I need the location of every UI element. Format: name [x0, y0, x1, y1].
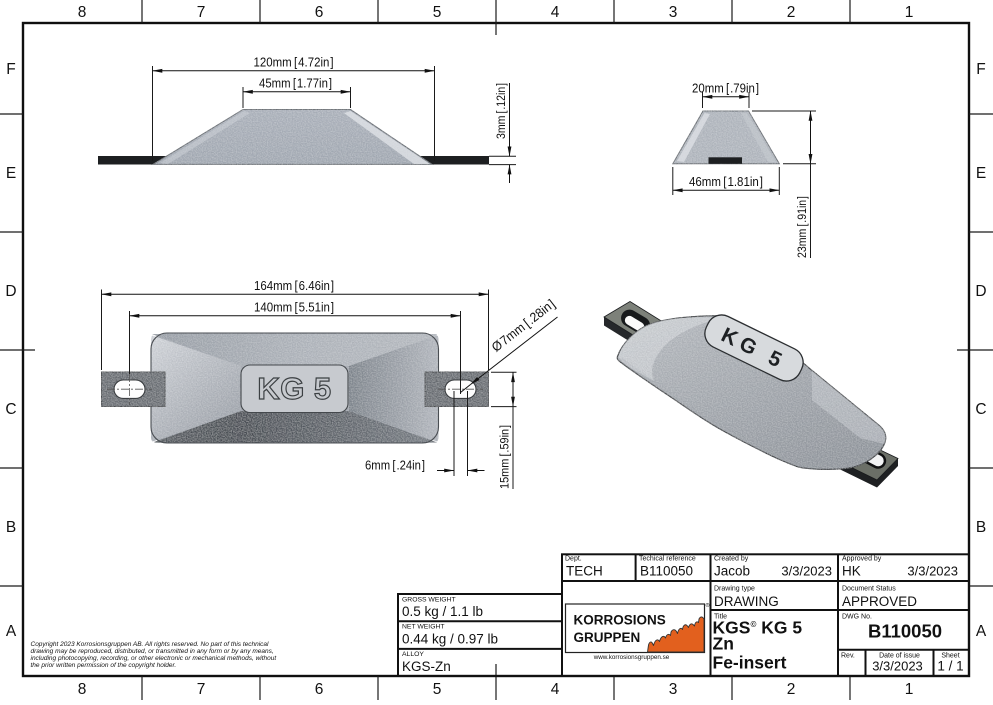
svg-text:46mm [ 1.81in ]: 46mm [ 1.81in ] — [689, 174, 763, 189]
svg-text:F: F — [976, 61, 985, 78]
svg-text:6: 6 — [315, 4, 324, 21]
svg-text:45mm [ 1.77in ]: 45mm [ 1.77in ] — [259, 76, 332, 91]
svg-text:®: ® — [706, 602, 710, 609]
svg-text:Document Status: Document Status — [842, 586, 896, 593]
svg-text:drawing may be reproduced, dis: drawing may be reproduced, distributed, … — [31, 648, 274, 655]
svg-text:ALLOY: ALLOY — [402, 651, 424, 658]
svg-text:Zn: Zn — [713, 634, 734, 654]
svg-text:164mm [ 6.46in ]: 164mm [ 6.46in ] — [254, 278, 334, 293]
svg-text:Created by: Created by — [714, 556, 749, 563]
svg-text:Dept.: Dept. — [565, 556, 582, 563]
svg-text:4: 4 — [551, 681, 560, 698]
svg-text:including photocopying, record: including photocopying, recording, or ot… — [31, 655, 278, 662]
svg-text:KGS-Zn: KGS-Zn — [402, 659, 451, 674]
svg-text:1: 1 — [905, 681, 914, 698]
svg-text:C: C — [5, 401, 16, 418]
svg-text:F: F — [6, 61, 15, 78]
svg-text:7: 7 — [197, 681, 206, 698]
svg-text:5: 5 — [433, 4, 442, 21]
svg-text:1 / 1: 1 / 1 — [937, 659, 963, 674]
svg-text:KORROSIONS: KORROSIONS — [574, 613, 666, 628]
svg-text:2: 2 — [787, 4, 796, 21]
svg-text:www.korrosionsgruppen.se: www.korrosionsgruppen.se — [593, 654, 670, 661]
svg-text:B: B — [6, 519, 16, 536]
svg-text:Drawing type: Drawing type — [714, 586, 755, 593]
svg-text:D: D — [5, 283, 16, 300]
svg-text:3/3/2023: 3/3/2023 — [872, 659, 923, 674]
svg-text:A: A — [976, 623, 987, 640]
svg-text:E: E — [6, 165, 16, 182]
svg-text:8: 8 — [78, 681, 87, 698]
svg-text:3/3/2023: 3/3/2023 — [781, 564, 832, 579]
svg-text:C: C — [975, 401, 986, 418]
svg-text:3mm [ .12in ]: 3mm [ .12in ] — [494, 83, 508, 139]
svg-text:DRAWING: DRAWING — [714, 594, 779, 609]
svg-text:4: 4 — [551, 4, 560, 21]
svg-text:GROSS WEIGHT: GROSS WEIGHT — [402, 597, 456, 604]
svg-text:3/3/2023: 3/3/2023 — [907, 564, 958, 579]
svg-text:3: 3 — [669, 4, 678, 21]
svg-text:0.44 kg / 0.97 lb: 0.44 kg / 0.97 lb — [402, 632, 498, 647]
svg-text:Rev.: Rev. — [841, 653, 855, 660]
svg-text:0.5 kg / 1.1 lb: 0.5 kg / 1.1 lb — [402, 604, 483, 619]
svg-text:B110050: B110050 — [868, 621, 942, 642]
svg-text:D: D — [975, 283, 986, 300]
svg-text:GRUPPEN: GRUPPEN — [574, 630, 641, 645]
svg-text:6: 6 — [315, 681, 324, 698]
svg-text:B: B — [976, 519, 986, 536]
svg-text:15mm [ .59in ]: 15mm [ .59in ] — [498, 425, 512, 489]
svg-text:7: 7 — [197, 4, 206, 21]
svg-text:TECH: TECH — [566, 564, 603, 579]
svg-text:NET WEIGHT: NET WEIGHT — [402, 624, 445, 631]
svg-text:KG 5: KG 5 — [257, 371, 331, 406]
svg-text:120mm [ 4.72in ]: 120mm [ 4.72in ] — [254, 55, 334, 70]
svg-text:23mm [ .91in ]: 23mm [ .91in ] — [795, 196, 809, 258]
svg-text:the prior written permission o: the prior written permission of the copy… — [31, 662, 177, 669]
svg-text:APPROVED: APPROVED — [842, 594, 917, 609]
svg-text:Approved by: Approved by — [842, 556, 882, 563]
svg-text:Techical reference: Techical reference — [639, 556, 696, 563]
svg-text:1: 1 — [905, 4, 914, 21]
svg-text:Jacob: Jacob — [714, 564, 750, 579]
svg-text:8: 8 — [78, 4, 87, 21]
svg-text:5: 5 — [433, 681, 442, 698]
svg-text:HK: HK — [842, 564, 861, 579]
svg-text:Copyright 2023 Korrosionsgrupp: Copyright 2023 Korrosionsgruppen AB. All… — [31, 641, 270, 648]
svg-text:Fe-insert: Fe-insert — [713, 653, 787, 673]
svg-text:3: 3 — [669, 681, 678, 698]
svg-text:20mm [ .79in ]: 20mm [ .79in ] — [692, 81, 759, 96]
svg-text:DWG No.: DWG No. — [842, 614, 872, 621]
svg-text:6mm [ .24in ]: 6mm [ .24in ] — [365, 458, 426, 473]
svg-text:2: 2 — [787, 681, 796, 698]
svg-text:140mm [ 5.51in ]: 140mm [ 5.51in ] — [254, 300, 334, 315]
svg-text:E: E — [976, 165, 986, 182]
svg-text:B110050: B110050 — [640, 564, 693, 579]
svg-text:A: A — [6, 623, 17, 640]
